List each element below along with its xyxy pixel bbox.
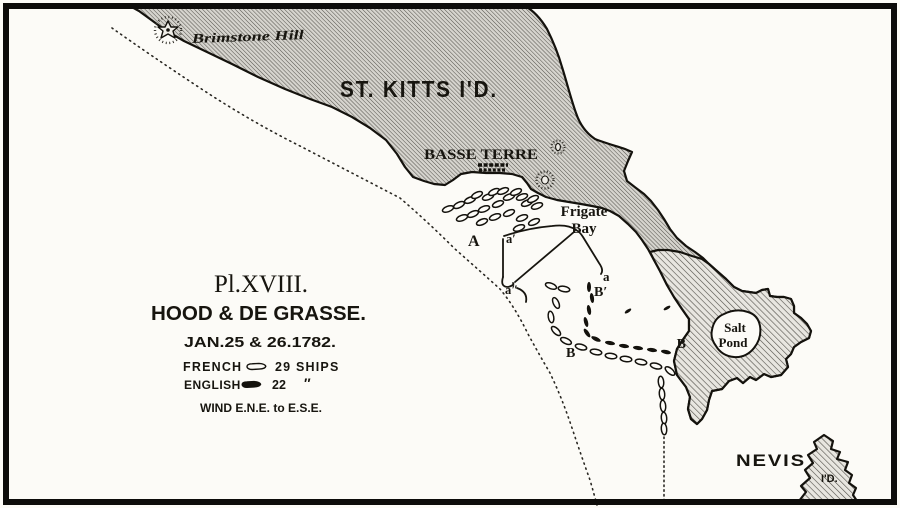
position-label-a: a <box>603 269 610 284</box>
french-ship-symbol <box>658 376 664 388</box>
legend-french-count: 29 SHIPS <box>275 360 340 374</box>
french-ship-symbol <box>659 388 665 400</box>
nevis-label: NEVIS <box>736 452 806 470</box>
salt-pond-label-line2: Pond <box>719 335 749 350</box>
position-label-A: A <box>468 233 480 250</box>
salt-pond-label-line1: Salt <box>724 320 746 335</box>
st-kitts-island-label: ST. KITTS I'D. <box>340 76 498 102</box>
legend-french-label: FRENCH <box>183 360 242 374</box>
frigate-bay-label-line1: Frigate <box>561 204 608 220</box>
map-canvas: ST. KITTS I'D. Brimstone Hill BASSE TERR… <box>0 0 900 508</box>
french-ship-symbol <box>661 412 667 424</box>
engraved-battle-map: ST. KITTS I'D. Brimstone Hill BASSE TERR… <box>0 0 900 508</box>
english-ship-symbol <box>587 282 591 292</box>
english-ship-legend-icon <box>242 381 261 387</box>
french-ship-legend-icon <box>247 363 266 369</box>
plate-date: JAN.25 & 26.1782. <box>184 334 336 351</box>
legend-wind-note: WIND E.N.E. to E.S.E. <box>200 403 322 415</box>
position-label-a-doubleprime: a″ <box>505 283 518 297</box>
position-label-B-prime: B′ <box>594 285 607 300</box>
frigate-bay-label-line2: Bay <box>571 221 597 237</box>
french-ship-symbol <box>660 400 666 412</box>
french-ship-symbol <box>661 423 667 435</box>
legend-english-label: ENGLISH <box>184 378 241 392</box>
position-label-B-left: B <box>566 346 575 361</box>
nevis-id-label: I'D. <box>821 473 838 485</box>
plate-number: Pl.XVIII. <box>214 271 308 298</box>
position-label-a-prime: a′ <box>506 232 516 246</box>
legend-english-ditto-mark: ″ <box>304 375 311 391</box>
legend-english-count: 22 <box>272 378 286 392</box>
basse-terre-label: BASSE TERRE <box>424 147 538 163</box>
plate-title: HOOD & DE GRASSE. <box>151 303 366 325</box>
position-label-B-right: B <box>677 337 686 352</box>
